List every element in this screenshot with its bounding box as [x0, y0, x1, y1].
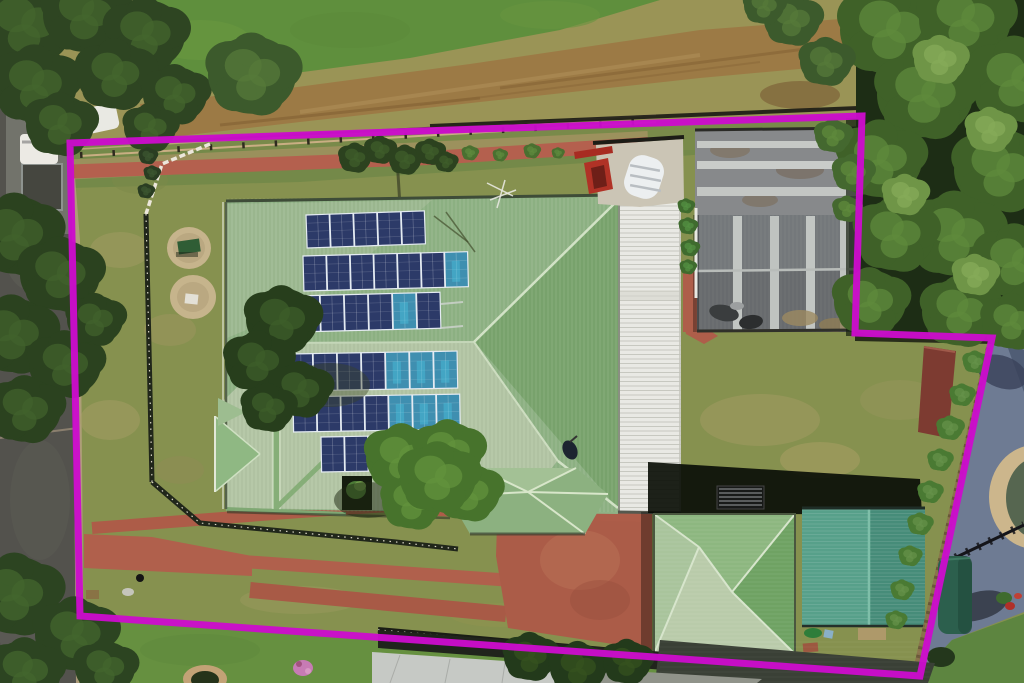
hedge-highlight — [926, 492, 934, 499]
lawn-patch — [144, 314, 196, 346]
lawn-patch — [80, 400, 140, 440]
hedge-highlight — [442, 162, 449, 169]
solar-row-5-reflection — [420, 403, 429, 424]
trestle — [858, 628, 886, 640]
shrub-highlight — [529, 151, 534, 156]
shrub-highlight — [467, 153, 472, 158]
tree-highlight — [938, 234, 969, 262]
property-aerial-photo — [0, 0, 1024, 683]
pink-flower-bush — [293, 660, 313, 676]
bricks — [803, 642, 819, 652]
hedge-highlight — [936, 460, 944, 467]
road-patch — [10, 440, 70, 560]
tree-highlight — [46, 274, 73, 298]
tree-highlight — [872, 29, 906, 59]
solar-row-5-reflection — [396, 404, 405, 425]
tree-highlight — [897, 195, 912, 208]
roof-valley — [283, 342, 474, 343]
pink-flower — [296, 661, 302, 667]
hedge-highlight — [375, 150, 385, 159]
solar-row-2-reflection — [452, 261, 461, 282]
hedge-highlight — [349, 158, 360, 168]
tree-highlight — [857, 301, 881, 323]
hedge-highlight — [892, 620, 899, 626]
bird-bath — [122, 588, 134, 596]
tree-highlight — [246, 361, 268, 381]
solar-row-4-reflection — [441, 360, 450, 382]
lawn-patch — [700, 394, 820, 446]
hedge-highlight — [399, 160, 410, 170]
tree-highlight — [881, 234, 908, 258]
hedge-highlight — [898, 590, 905, 597]
green-box-shadow — [176, 252, 198, 257]
tree-highlight — [983, 169, 1014, 197]
chair — [823, 629, 833, 638]
solar-row-3-reflection — [400, 302, 409, 324]
yard-junk — [730, 302, 744, 310]
hedge-highlight — [425, 152, 435, 160]
tree-over-shed-highlight — [827, 136, 839, 147]
grass-patch — [140, 634, 260, 666]
white-box — [185, 293, 199, 304]
paver — [86, 590, 99, 599]
black-object — [136, 574, 144, 582]
hedge-highlight — [971, 362, 979, 369]
red-flower — [1005, 602, 1015, 610]
tree-highlight — [424, 477, 450, 500]
tree-highlight — [908, 94, 941, 123]
tree-highlight — [85, 319, 104, 336]
tree-highlight — [101, 74, 127, 97]
garage-shadow-strip — [641, 512, 654, 654]
pink-flower — [305, 668, 311, 674]
tree-highlight — [259, 408, 277, 424]
tree-highlight — [931, 60, 949, 76]
hedge-highlight — [685, 226, 691, 231]
tree-highlight — [1001, 321, 1021, 339]
tree-highlight — [967, 275, 982, 288]
red-flower — [1014, 593, 1022, 599]
grass-patch — [290, 12, 410, 48]
shed-debris — [782, 310, 818, 326]
aerial-photo-canvas — [0, 0, 1024, 683]
tree-highlight — [981, 130, 997, 144]
tree-highlight — [70, 14, 99, 39]
shrub-highlight — [497, 155, 502, 159]
tree-highlight — [236, 74, 266, 100]
tree-highlight — [782, 19, 801, 36]
hedge-highlight — [958, 395, 966, 402]
white-roof-band — [618, 290, 681, 300]
shed-bottom-edge — [697, 330, 860, 331]
tree-highlight — [757, 6, 771, 18]
hedge-highlight — [906, 556, 913, 563]
mower — [804, 628, 822, 638]
tree-highlight — [817, 62, 835, 78]
tree-over-shed-highlight — [842, 209, 852, 217]
pad-patch — [570, 580, 630, 620]
tree-highlight — [0, 594, 29, 620]
tree-highlight — [521, 657, 539, 673]
hedge-highlight — [916, 524, 924, 531]
hedge-highlight — [145, 156, 151, 161]
hedge-highlight — [683, 206, 688, 211]
hedge-highlight — [685, 267, 690, 272]
grass-patch — [500, 1, 600, 29]
hedge-highlight — [143, 191, 148, 196]
tree-highlight — [12, 409, 36, 431]
shed-stripe-h — [697, 187, 858, 196]
hedge-highlight — [687, 248, 693, 253]
water-tank-shade — [958, 556, 972, 634]
tree-highlight — [946, 311, 972, 334]
hedge-highlight — [149, 173, 154, 178]
hedge-highlight — [945, 428, 954, 436]
solar-row-4-reflection — [417, 361, 426, 383]
tree-highlight — [618, 662, 634, 676]
solar-row-4-reflection — [393, 361, 402, 383]
lawn-patch — [156, 456, 204, 484]
shrub-highlight — [556, 153, 560, 157]
shed-stripe-v — [770, 216, 779, 330]
